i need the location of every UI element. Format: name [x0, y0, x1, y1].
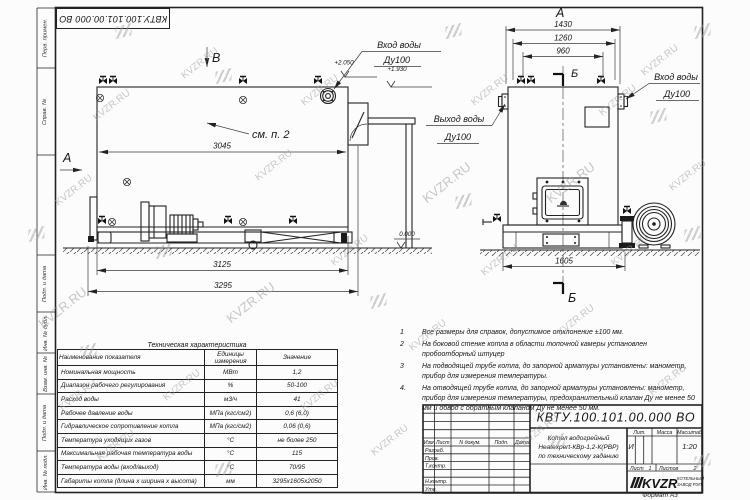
note-item-3: 3 На подводящей трубе котла, до запорной…	[396, 362, 702, 382]
note-item-4: 4. На отводящей трубе котла, до запорной…	[396, 384, 702, 414]
margin-label-sprav-no: Справ. №	[36, 68, 55, 155]
role-checked: Пров.	[425, 456, 439, 462]
outlet-dn-label: Ду100	[444, 132, 471, 142]
front-dimensions: 1430 1260 960 1605	[503, 20, 625, 271]
dim-960: 960	[556, 47, 570, 56]
elev-top-label: +2.050	[334, 60, 354, 67]
section-b-top-label: Б	[571, 68, 578, 80]
fan-motor-unit	[141, 202, 203, 242]
sheets-label: Листов	[658, 466, 679, 472]
lit-label: Лит.	[632, 430, 645, 436]
tech-row: Температура уходящих газов°Сне более 250	[58, 433, 338, 447]
water-inlet-flange	[321, 89, 336, 104]
product-name-1: Котел водогрейный	[548, 434, 610, 442]
drawing-sheet: { "watermark": "KVZR.RU", "margin": { "l…	[0, 0, 750, 500]
margin-label-inv-dubl: Инв. № дубл.	[36, 312, 55, 353]
company-sub1: КОТЕЛЬНЫЙ	[677, 476, 705, 481]
dim-1430: 1430	[554, 20, 572, 29]
company-logo: KVZR КОТЕЛЬНЫЙ ЗАВОД РЭП	[630, 476, 705, 491]
dim-1260: 1260	[554, 34, 572, 43]
outlet-label: Выход воды	[434, 114, 485, 124]
note-item-1: 1 Все размеры для справок, допустимое от…	[396, 328, 702, 338]
col-doc: N докум.	[459, 440, 480, 446]
scale-value: 1:20	[682, 442, 697, 451]
sheet-label: Лист	[629, 466, 644, 472]
sheet-value: 1	[649, 466, 652, 472]
tech-row: Номинальная мощностьМВт1,2	[58, 366, 338, 380]
inlet-label: Вход воды	[377, 40, 421, 50]
inlet-label-front: Вход воды	[654, 72, 698, 82]
top-designation-stamp: КВТУ.100.101.00.000 ВО	[56, 8, 170, 29]
margin-label-vzam-inv: Взам. инв. №	[36, 353, 55, 394]
inlet-dn-label-front: Ду100	[663, 89, 690, 99]
tech-table: Наименование показателя Единицы измерени…	[57, 349, 338, 488]
view-b-label: В	[212, 51, 220, 65]
inlet-dn-label: Ду100	[383, 55, 410, 65]
boiler-side-view: 3045 3125 3295 см. п. 2 В А Вход воды Ду…	[60, 40, 441, 296]
sheets-value: 2	[693, 466, 697, 472]
boiler-front-view: 1430 1260 960 1605 А Б Б Выход воды Ду10…	[426, 6, 700, 305]
role-approved: Утв.	[425, 487, 437, 493]
see-note-label: см. п. 2	[252, 129, 289, 141]
mass-label: Масса	[657, 430, 673, 436]
tech-row: Максимальная рабочая температура воды°С1…	[58, 447, 338, 461]
dim-3125: 3125	[213, 260, 231, 269]
tech-row: Расход водым3/ч41	[58, 393, 338, 407]
elev-zero-label: 0.000	[399, 231, 415, 238]
format-label: Формат А3	[614, 492, 706, 499]
note-item-2: 2 На боковой стенке котла в области топо…	[396, 340, 702, 360]
product-name-2: Heatexpert-КВр-1,2-К(РВР)	[538, 444, 618, 451]
blower-fan	[619, 203, 675, 248]
section-a-label: А	[62, 151, 71, 165]
margin-label-podp-data-1: Подп. и дата	[36, 255, 55, 312]
dim-3295: 3295	[214, 281, 232, 290]
inspection-hatch	[585, 107, 609, 127]
col-izm: Изм	[424, 440, 434, 446]
col-sign: Подп.	[494, 440, 508, 446]
view-a-label: А	[555, 6, 564, 20]
role-ncontrol: Н.контр.	[425, 479, 447, 485]
margin-label-perv-primen: Перв. примен.	[36, 8, 55, 68]
product-name-3: по техническому заданию	[538, 452, 618, 460]
col-date: Дата	[514, 440, 529, 446]
tech-row: Температура воды (вход/выход)°С70/95	[58, 461, 338, 475]
side-dimensions: 3045 3125 3295	[88, 142, 358, 297]
margin-label-podp-data-2: Подп. и дата	[36, 394, 55, 451]
tech-characteristics: Техническая характеристика Наименование …	[57, 342, 338, 488]
role-tcontrol: Т.контр.	[425, 464, 446, 470]
tech-row: Рабочее давление водыМПа (кгс/см2)0,6 (6…	[58, 406, 338, 420]
elev-inlet-label: +1.930	[387, 66, 407, 73]
tech-row: Гидравлическое сопротивление котлаМПа (к…	[58, 420, 338, 434]
tech-header-units: Единицы измерения	[205, 350, 257, 366]
tech-table-title: Техническая характеристика	[57, 342, 337, 349]
furnace-door	[533, 178, 588, 225]
tech-row: Габариты котла (длина х ширина х высота)…	[58, 474, 338, 488]
section-b-bottom-label: Б	[568, 291, 576, 305]
company-sub2: ЗАВОД РЭП	[677, 482, 703, 487]
title-block: КВТУ.100.101.00.000 ВО Изм Лист N докум.…	[423, 405, 705, 493]
tech-header-value: Значение	[257, 350, 338, 366]
side-annotations: см. п. 2 В А Вход воды Ду100 +2.050 +1.9…	[60, 40, 441, 248]
tech-row: Диапазон рабочего регулирования%50-100	[58, 379, 338, 393]
company-name: KVZR	[642, 476, 678, 491]
scale-label: Масштаб	[677, 430, 703, 436]
col-list: Лист	[435, 440, 450, 446]
top-designation-text: КВТУ.100.101.00.000 ВО	[59, 14, 167, 24]
dim-1605: 1605	[555, 257, 573, 266]
valves-side	[96, 77, 322, 226]
tech-header-name: Наименование показателя	[58, 350, 205, 366]
notes-list: 1 Все размеры для справок, допустимое от…	[396, 328, 702, 416]
lit-value: И	[628, 442, 634, 451]
tech-header-row: Наименование показателя Единицы измерени…	[58, 350, 338, 366]
dim-3045: 3045	[213, 142, 231, 151]
inlet-flange	[618, 94, 628, 109]
margin-label-inv-podl: Инв. № подл.	[36, 451, 55, 492]
role-developed: Разраб.	[425, 448, 444, 454]
